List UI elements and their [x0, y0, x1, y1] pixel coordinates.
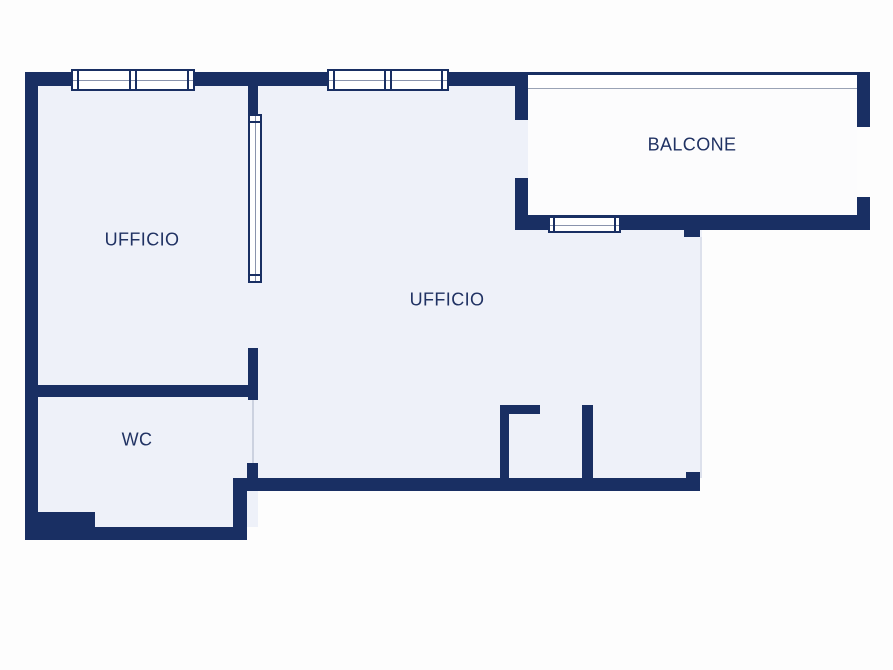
window-top-center [327, 69, 449, 91]
room-floor-wc [38, 397, 258, 512]
window-frame-line [135, 71, 137, 89]
room-label-ufficio-left: UFFICIO [105, 230, 180, 251]
room-label-wc: WC [122, 430, 153, 451]
window-top-left [71, 69, 195, 91]
wall-balcony-right-bottom [857, 197, 870, 230]
wall-alcove-right [582, 405, 593, 478]
open-boundary-wc-door [252, 400, 254, 463]
wall-step-bottom-left [37, 512, 95, 527]
wall-wc-top [38, 385, 258, 397]
wall-balcony-bottom-tab [684, 230, 700, 237]
balcony-railing [528, 72, 857, 89]
room-label-balcone: BALCONE [648, 135, 737, 156]
wall-bottom-wc [25, 527, 247, 540]
window-frame-line [77, 71, 79, 89]
wall-main-bottom-right-stub [686, 472, 700, 478]
wall-left [25, 72, 38, 540]
wall-alcove-left [500, 405, 509, 478]
wall-alcove-top [509, 405, 540, 414]
window-frame-line [441, 71, 443, 89]
window-frame-line [129, 71, 131, 89]
wall-partition-top-stub [248, 86, 258, 116]
window-frame-line [384, 71, 386, 89]
wall-partition-lower [248, 348, 258, 400]
floorplan: UFFICIO UFFICIO BALCONE WC [0, 0, 893, 600]
footer: quimmo il tuo immobile è qui MISURE SONO… [0, 600, 893, 670]
window-frame-line [250, 121, 260, 123]
open-boundary-main-right [700, 237, 702, 478]
window-frame-line [553, 218, 555, 231]
wall-main-bottom [247, 478, 700, 491]
window-frame-line [390, 71, 392, 89]
window-frame-line [333, 71, 335, 89]
room-label-ufficio-main: UFFICIO [410, 290, 485, 311]
wall-wc-right [233, 478, 247, 540]
window-balcony-door [548, 216, 621, 233]
glass-partition-window [248, 114, 262, 283]
wall-balcony-left-top [515, 86, 528, 120]
window-frame-line [250, 274, 260, 276]
window-frame-line [614, 218, 616, 231]
window-frame-line [187, 71, 189, 89]
floorplan-image: UFFICIO UFFICIO BALCONE WC quimmo il tuo… [0, 0, 893, 670]
wall-balcony-right-top [857, 72, 870, 127]
wall-doorway-stub [247, 463, 258, 478]
